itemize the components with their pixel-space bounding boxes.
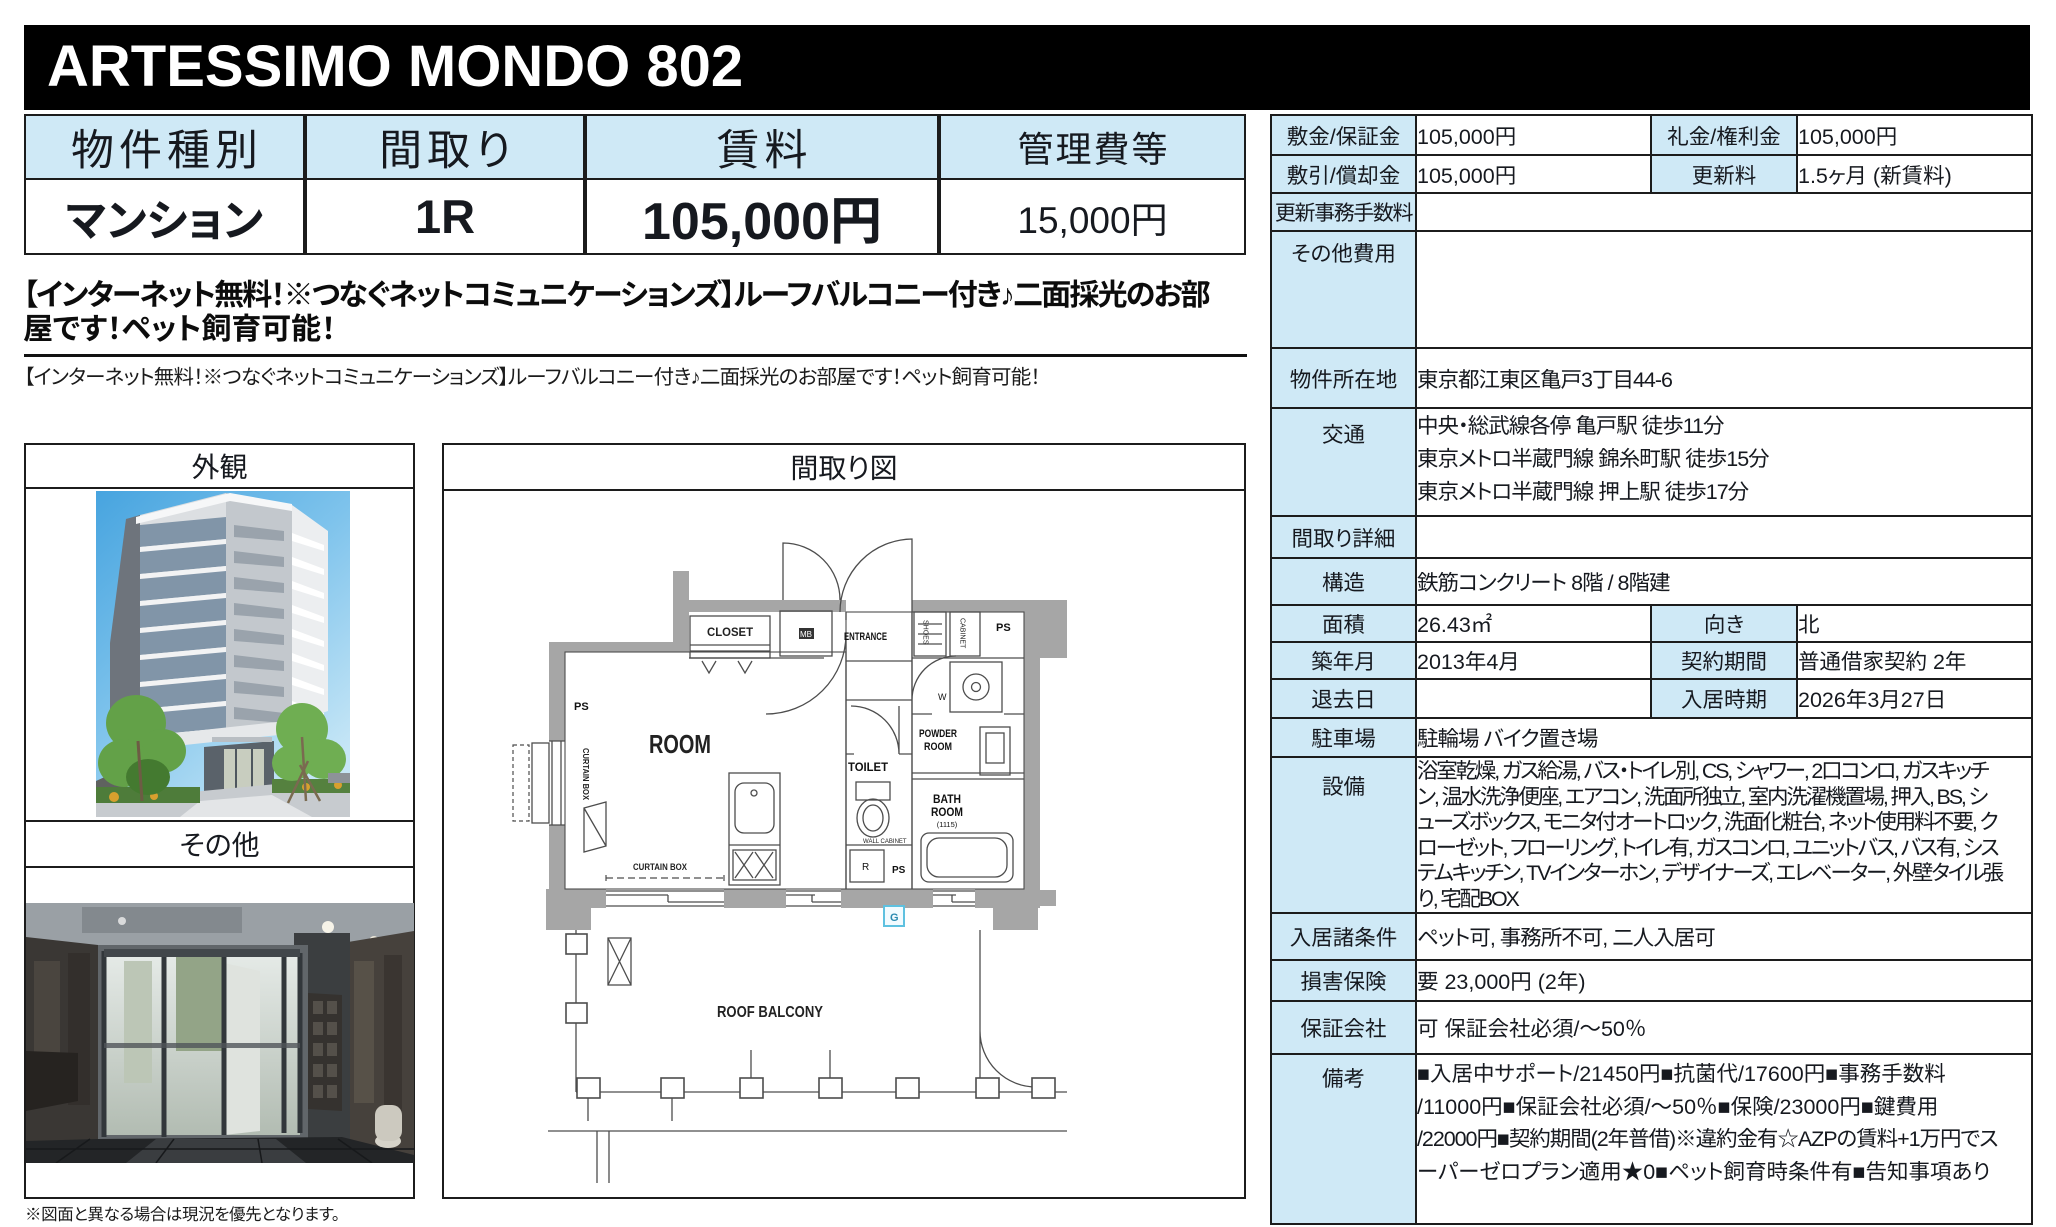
svg-text:ROOF BALCONY: ROOF BALCONY [717,1004,823,1021]
svg-text:PS: PS [996,622,1011,634]
svg-text:(1115): (1115) [937,820,958,829]
svg-text:MB: MB [800,630,812,639]
svg-text:WALL CABINET: WALL CABINET [863,839,907,845]
svg-text:W: W [938,692,947,702]
svg-text:CABINET: CABINET [959,618,966,649]
svg-text:ROOM: ROOM [924,741,952,753]
svg-text:POWDER: POWDER [919,728,957,740]
svg-text:PS: PS [892,865,906,876]
svg-text:CURTAIN BOX: CURTAIN BOX [633,862,687,872]
svg-text:ENTRANCE: ENTRANCE [844,631,887,643]
svg-text:R: R [862,862,869,873]
svg-text:G: G [890,912,899,924]
svg-text:SHOES: SHOES [922,620,929,645]
svg-text:CLOSET: CLOSET [707,625,754,639]
svg-text:CURTAIN BOX: CURTAIN BOX [581,748,591,800]
svg-text:ROOM: ROOM [931,807,963,819]
svg-text:ROOM: ROOM [649,729,711,759]
svg-text:PS: PS [574,701,589,713]
svg-text:TOILET: TOILET [848,762,888,774]
svg-text:BATH: BATH [933,794,961,806]
